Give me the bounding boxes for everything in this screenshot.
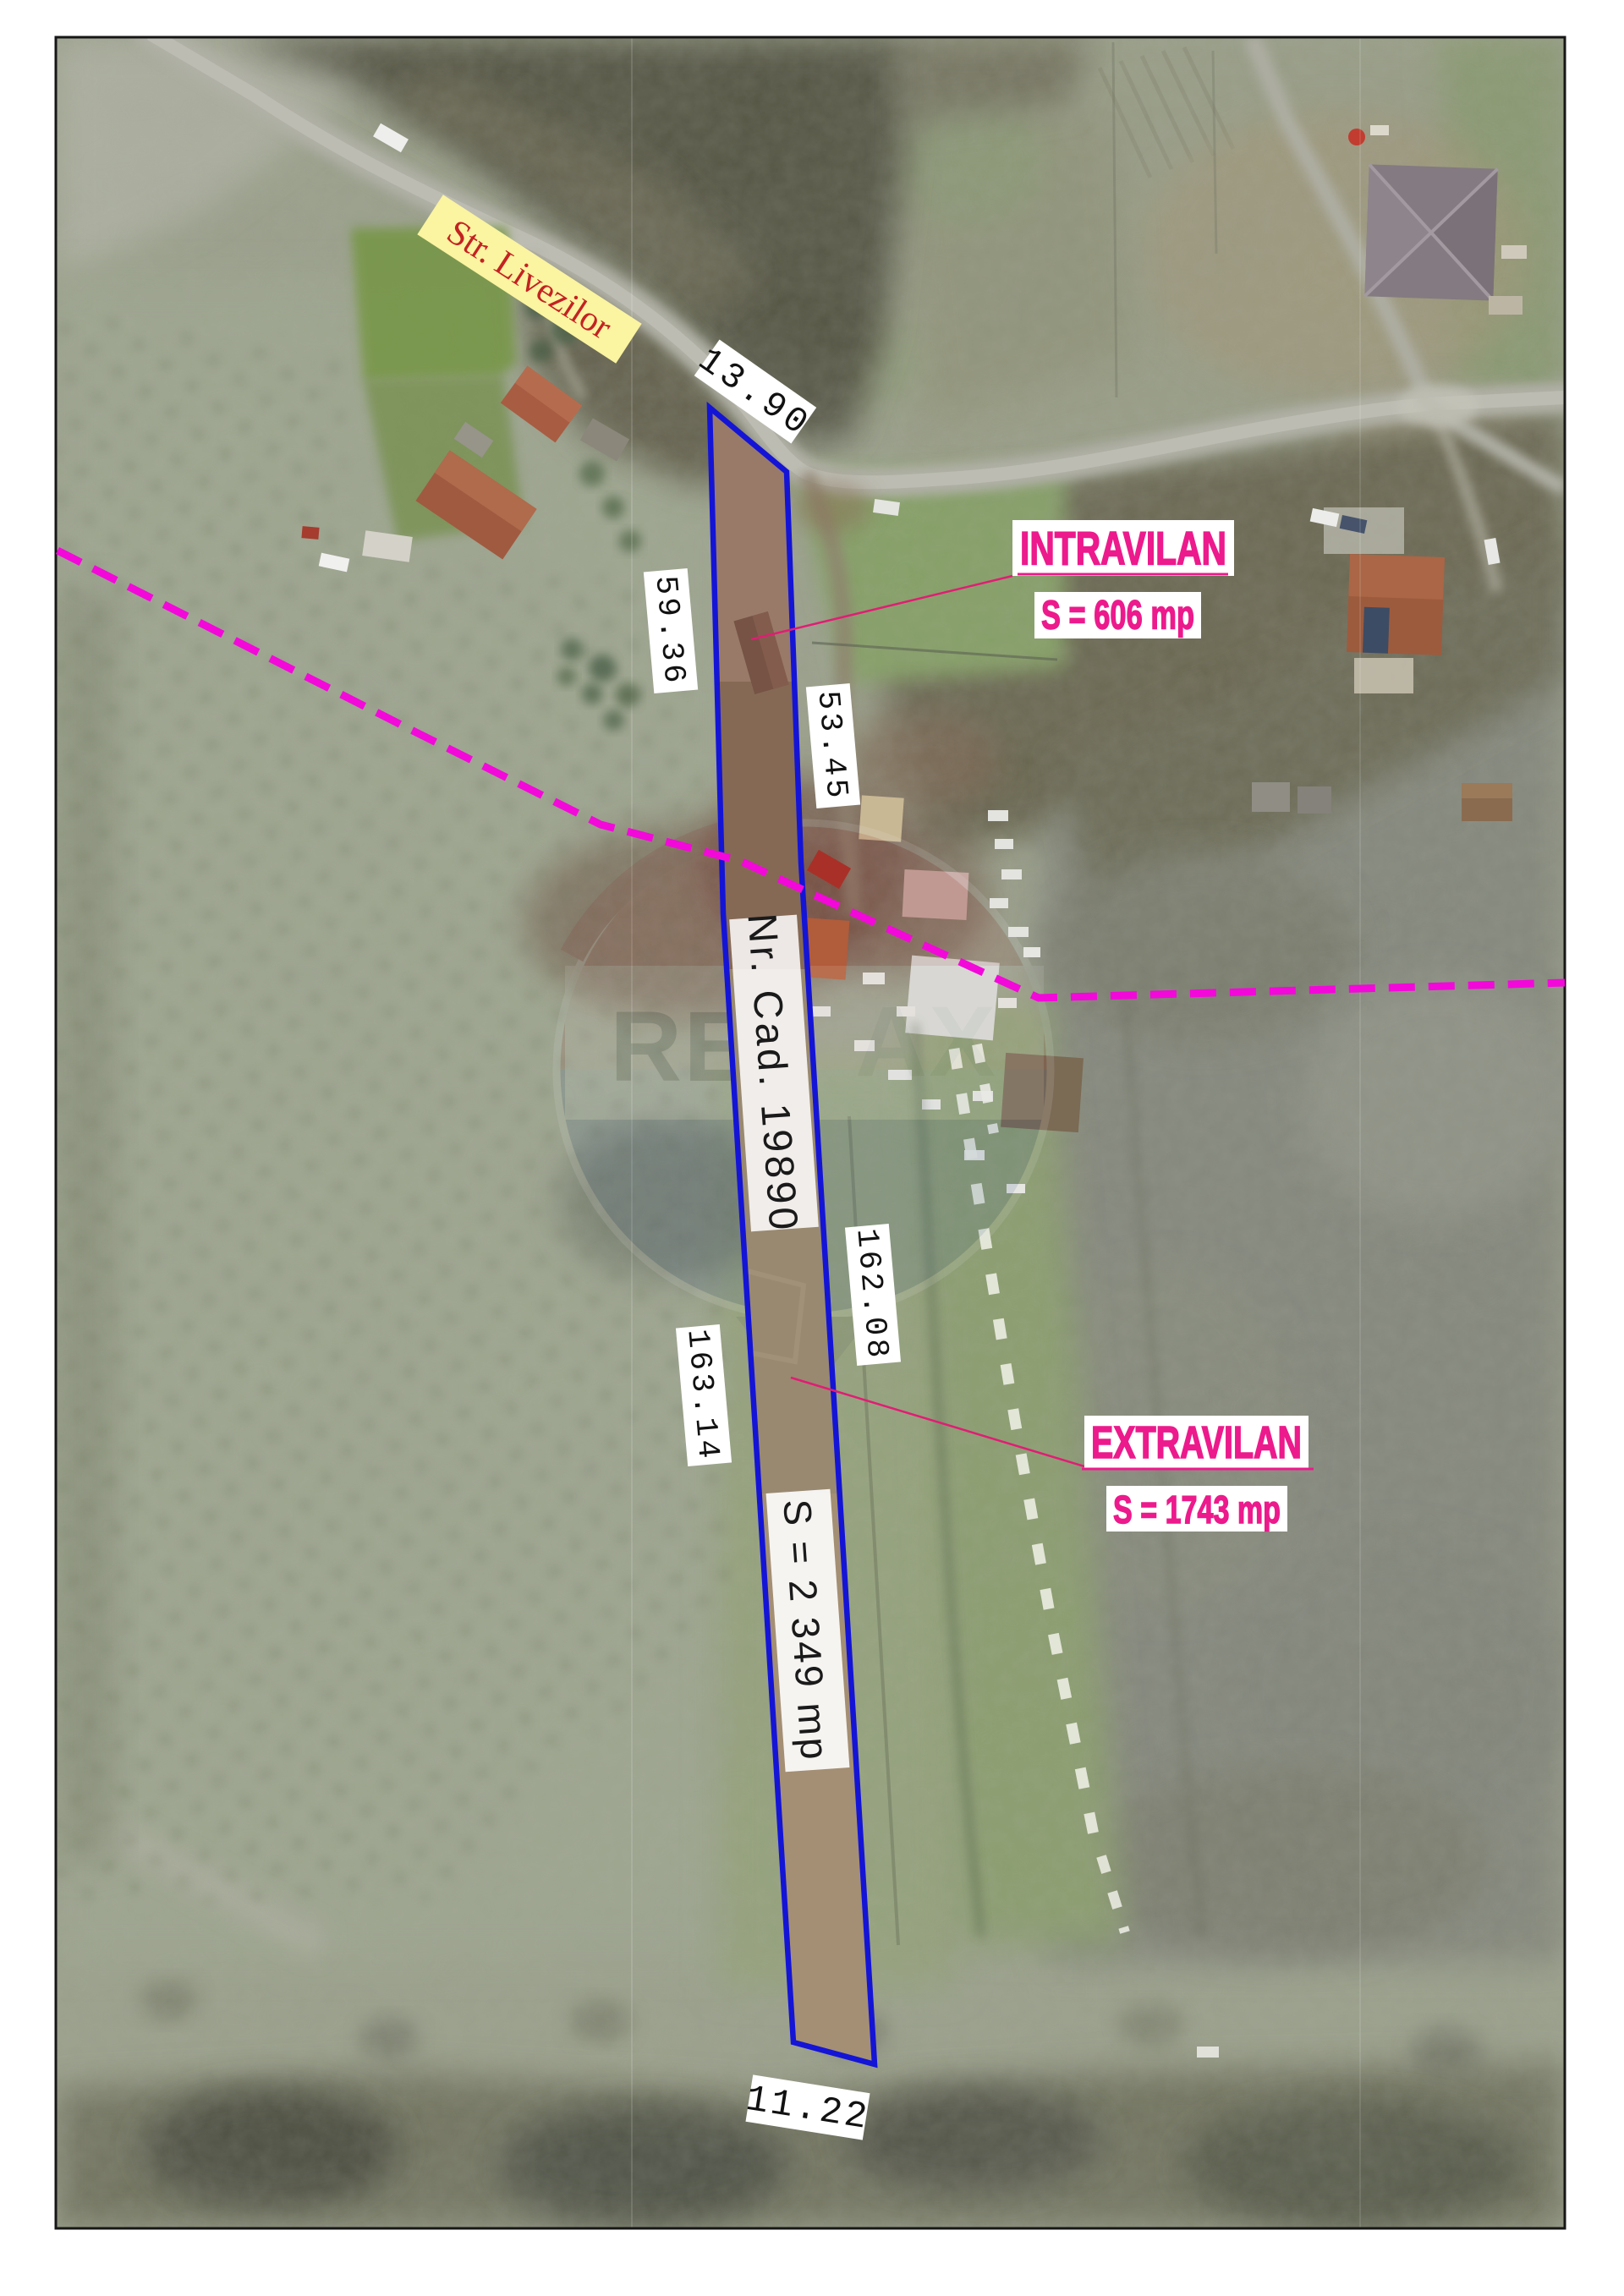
svg-text:INTRAVILAN: INTRAVILAN — [1020, 522, 1226, 575]
svg-text:EXTRAVILAN: EXTRAVILAN — [1091, 1417, 1302, 1468]
svg-text:S = 1743 mp: S = 1743 mp — [1113, 1488, 1281, 1532]
svg-text:AX: AX — [855, 986, 997, 1098]
svg-text:S = 606 mp: S = 606 mp — [1041, 594, 1194, 638]
